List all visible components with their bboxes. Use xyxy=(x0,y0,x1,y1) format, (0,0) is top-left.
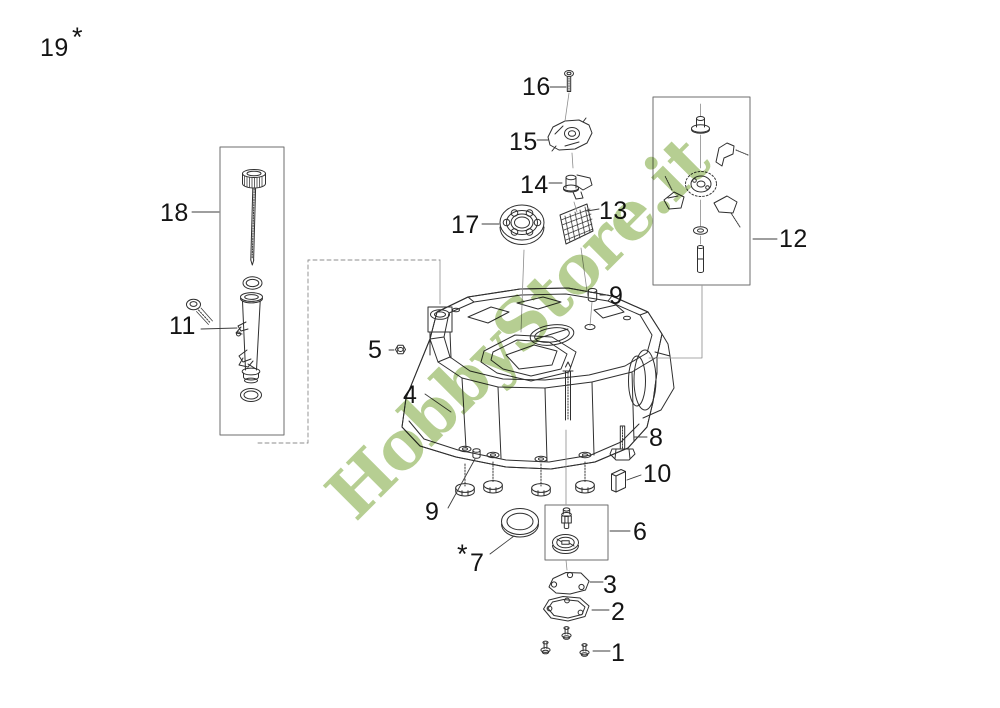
callout-8: 8 xyxy=(649,426,663,451)
callout-5: 5 xyxy=(368,338,382,363)
cover-screw-drawing xyxy=(562,627,571,640)
callout-6: 6 xyxy=(633,520,647,545)
callout-14: 14 xyxy=(520,173,549,198)
key-drawing xyxy=(612,470,626,493)
breather-plate-drawing xyxy=(548,118,592,151)
callout-3: 3 xyxy=(603,573,617,598)
sump-bolt-drawing xyxy=(576,462,595,493)
callout-11: 11 xyxy=(169,314,196,339)
sump-bolt-drawing xyxy=(456,464,475,496)
dipstick-tube-oring-bottom-drawing xyxy=(241,389,262,402)
nut-drawing xyxy=(396,345,406,354)
drain-valve-drawing xyxy=(553,508,579,554)
callout-10: 10 xyxy=(643,462,672,487)
callout-7-asterisk: * xyxy=(457,541,468,568)
cover-screw-drawing xyxy=(541,641,550,654)
sump-bolt-drawing xyxy=(484,462,503,493)
ball-bearing-drawing xyxy=(500,205,544,245)
breather-screw-drawing xyxy=(565,71,574,92)
breather-valve-drawing xyxy=(564,175,593,199)
dipstick-cap-drawing xyxy=(243,170,266,189)
callout-7: 7 xyxy=(470,551,484,576)
drain-cover-drawing xyxy=(544,597,590,622)
parts-diagram-canvas: 19 * 18 11 16 15 14 13 17 12 9 5 4 8 10 … xyxy=(0,0,1000,708)
callout-18: 18 xyxy=(160,201,189,226)
group-box-dipstick xyxy=(220,147,284,435)
cover-screw-drawing xyxy=(580,644,589,657)
callout-19: 19 xyxy=(40,36,69,61)
callout-9-bottom: 9 xyxy=(425,500,439,525)
group-box-drain-valve xyxy=(545,505,608,560)
callout-19-asterisk: * xyxy=(72,24,83,51)
callout-2: 2 xyxy=(611,600,625,625)
callout-1: 1 xyxy=(611,641,625,666)
callout-15: 15 xyxy=(509,130,538,155)
callout-16: 16 xyxy=(522,75,551,100)
dipstick-rod-drawing xyxy=(251,188,256,265)
dipstick-tube-oring-top-drawing xyxy=(243,277,262,289)
drain-gasket-drawing xyxy=(549,572,589,594)
dipstick-tube-drawing xyxy=(236,293,263,383)
callout-12: 12 xyxy=(779,227,808,252)
callout-17: 17 xyxy=(451,213,480,238)
oil-seal-drawing xyxy=(502,509,539,538)
